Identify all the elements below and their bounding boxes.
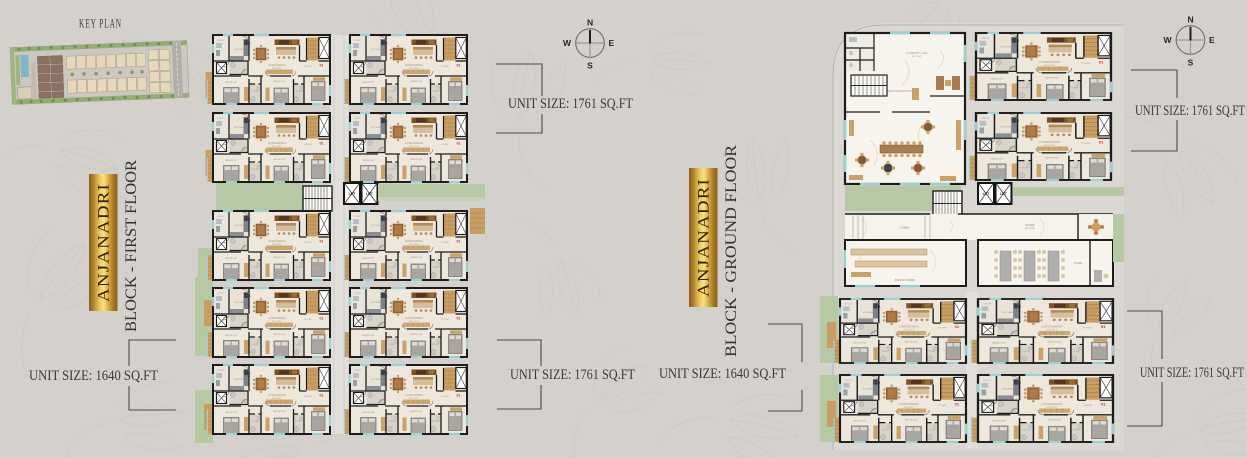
svg-text:STORE: STORE: [1026, 223, 1035, 227]
svg-text:KEY PLAN: KEY PLAN: [79, 17, 122, 31]
svg-text:UNIT SIZE: 1761 SQ.FT: UNIT SIZE: 1761 SQ.FT: [510, 367, 635, 383]
svg-text:30'0"X17'9": 30'0"X17'9": [1025, 228, 1035, 230]
svg-text:UNIT SIZE: 1640 SQ.FT: UNIT SIZE: 1640 SQ.FT: [29, 368, 158, 384]
svg-text:INDOOR GAMES: INDOOR GAMES: [895, 278, 916, 282]
svg-text:WAITING/RECEPTION: WAITING/RECEPTION: [888, 90, 913, 93]
svg-text:BLOCK - GROUND FLOOR: BLOCK - GROUND FLOOR: [723, 144, 740, 357]
svg-text:STORE: STORE: [1074, 262, 1083, 265]
svg-text:LOBBY: LOBBY: [900, 226, 910, 230]
svg-text:UNIT SIZE: 1640 SQ.FT: UNIT SIZE: 1640 SQ.FT: [659, 366, 786, 382]
svg-text:ANJANADRI: ANJANADRI: [696, 178, 713, 297]
svg-text:GYM/PARTY HALL: GYM/PARTY HALL: [906, 51, 929, 55]
svg-text:ANJANADRI: ANJANADRI: [96, 183, 113, 302]
svg-text:UNIT SIZE: 1761 SQ.FT: UNIT SIZE: 1761 SQ.FT: [508, 96, 633, 112]
svg-text:UNIT SIZE: 1761 SQ.FT: UNIT SIZE: 1761 SQ.FT: [1135, 103, 1245, 119]
svg-text:38'0"X19'6": 38'0"X19'6": [912, 56, 922, 58]
svg-text:UNIT SIZE: 1761 SQ.FT: UNIT SIZE: 1761 SQ.FT: [1140, 365, 1244, 381]
svg-text:BLOCK - FIRST FLOOR: BLOCK - FIRST FLOOR: [123, 159, 140, 332]
